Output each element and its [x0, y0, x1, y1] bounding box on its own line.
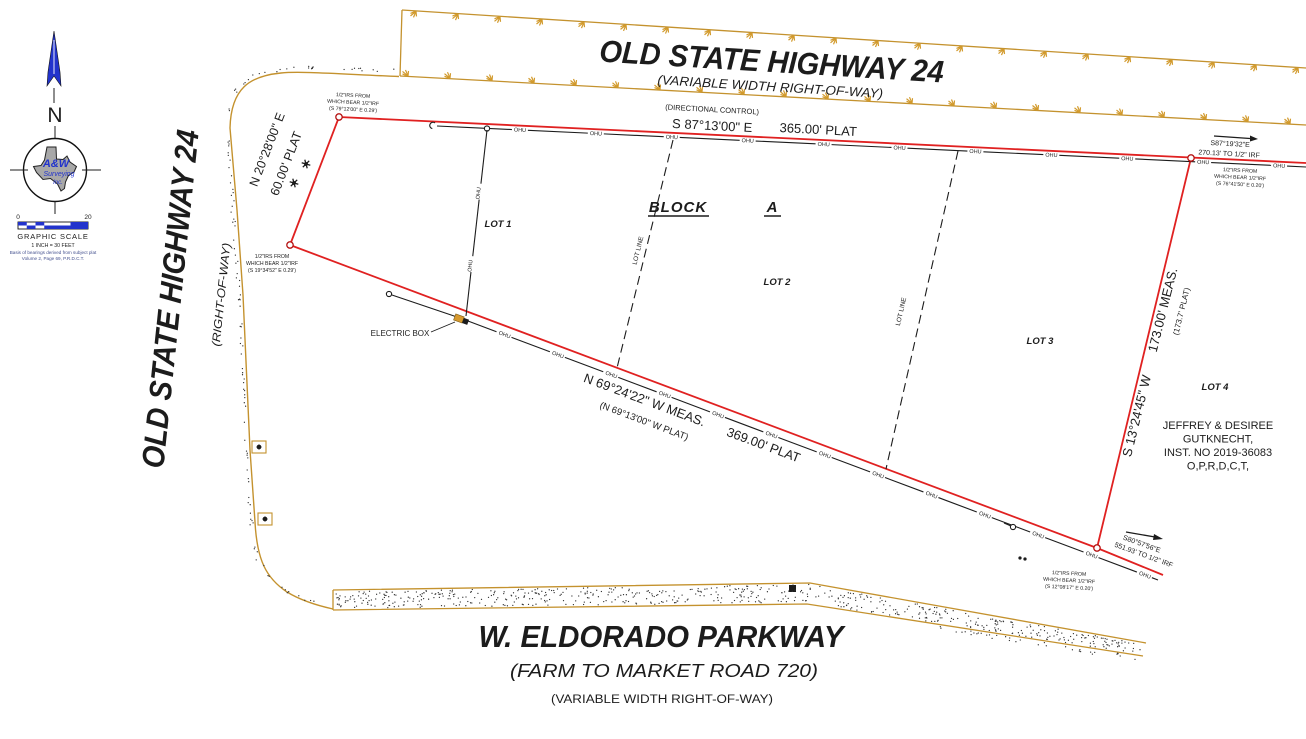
svg-text:GUTKNECHT,: GUTKNECHT,: [1183, 434, 1253, 446]
svg-text:1/2"IRS FROM: 1/2"IRS FROM: [255, 254, 289, 260]
svg-text:ELECTRIC BOX: ELECTRIC BOX: [371, 329, 430, 338]
svg-text:WHICH BEAR 1/2"IRF: WHICH BEAR 1/2"IRF: [246, 261, 298, 267]
svg-text:0: 0: [16, 214, 20, 221]
svg-text:LOT 4: LOT 4: [1202, 382, 1230, 393]
svg-text:(FARM TO MARKET ROAD 720): (FARM TO MARKET ROAD 720): [510, 661, 818, 681]
svg-text:W. ELDORADO PARKWAY: W. ELDORADO PARKWAY: [479, 619, 847, 654]
svg-text:OHU: OHU: [741, 138, 754, 145]
svg-text:LOT 3: LOT 3: [1027, 336, 1055, 347]
svg-text:N: N: [47, 104, 62, 127]
svg-text:INST. NO 2019-36083: INST. NO 2019-36083: [1164, 447, 1272, 459]
svg-text:OHU: OHU: [666, 135, 679, 142]
svg-text:OHU: OHU: [590, 131, 603, 138]
svg-text:(S 19°34'52" E 0.29'): (S 19°34'52" E 0.29'): [248, 268, 296, 274]
svg-text:OHU: OHU: [893, 145, 906, 152]
svg-text:OHU: OHU: [817, 142, 830, 149]
svg-text:1 INCH = 30 FEET: 1 INCH = 30 FEET: [31, 243, 75, 249]
svg-text:LOT 1: LOT 1: [485, 219, 512, 230]
svg-text:20: 20: [84, 214, 92, 221]
svg-text:Volume 2, Page 69, P.R.D.C.T.: Volume 2, Page 69, P.R.D.C.T.: [22, 256, 84, 261]
svg-text:OHU: OHU: [1197, 160, 1210, 167]
svg-text:Basis of bearings derived from: Basis of bearings derived from subject p…: [10, 250, 97, 255]
svg-text:BLOCK: BLOCK: [649, 199, 707, 216]
svg-text:Inc.: Inc.: [53, 180, 63, 186]
svg-text:OHU: OHU: [514, 127, 527, 134]
svg-text:OHU: OHU: [475, 187, 482, 200]
svg-text:OHU: OHU: [969, 149, 982, 156]
svg-text:O,P,R,D,C,T,: O,P,R,D,C,T,: [1187, 461, 1249, 473]
svg-text:Surveying: Surveying: [43, 171, 74, 178]
svg-text:A: A: [766, 199, 778, 216]
svg-text:A&W: A&W: [42, 158, 71, 170]
svg-text:LOT 2: LOT 2: [764, 277, 792, 288]
svg-text:GRAPHIC SCALE: GRAPHIC SCALE: [17, 232, 88, 241]
svg-text:OHU: OHU: [467, 259, 474, 272]
svg-text:(VARIABLE WIDTH RIGHT-OF-WAY): (VARIABLE WIDTH RIGHT-OF-WAY): [551, 694, 773, 706]
svg-text:OHU: OHU: [1121, 156, 1134, 163]
svg-text:OHU: OHU: [1273, 163, 1286, 170]
svg-text:OHU: OHU: [1045, 153, 1058, 160]
svg-text:JEFFREY & DESIREE: JEFFREY & DESIREE: [1163, 420, 1273, 432]
